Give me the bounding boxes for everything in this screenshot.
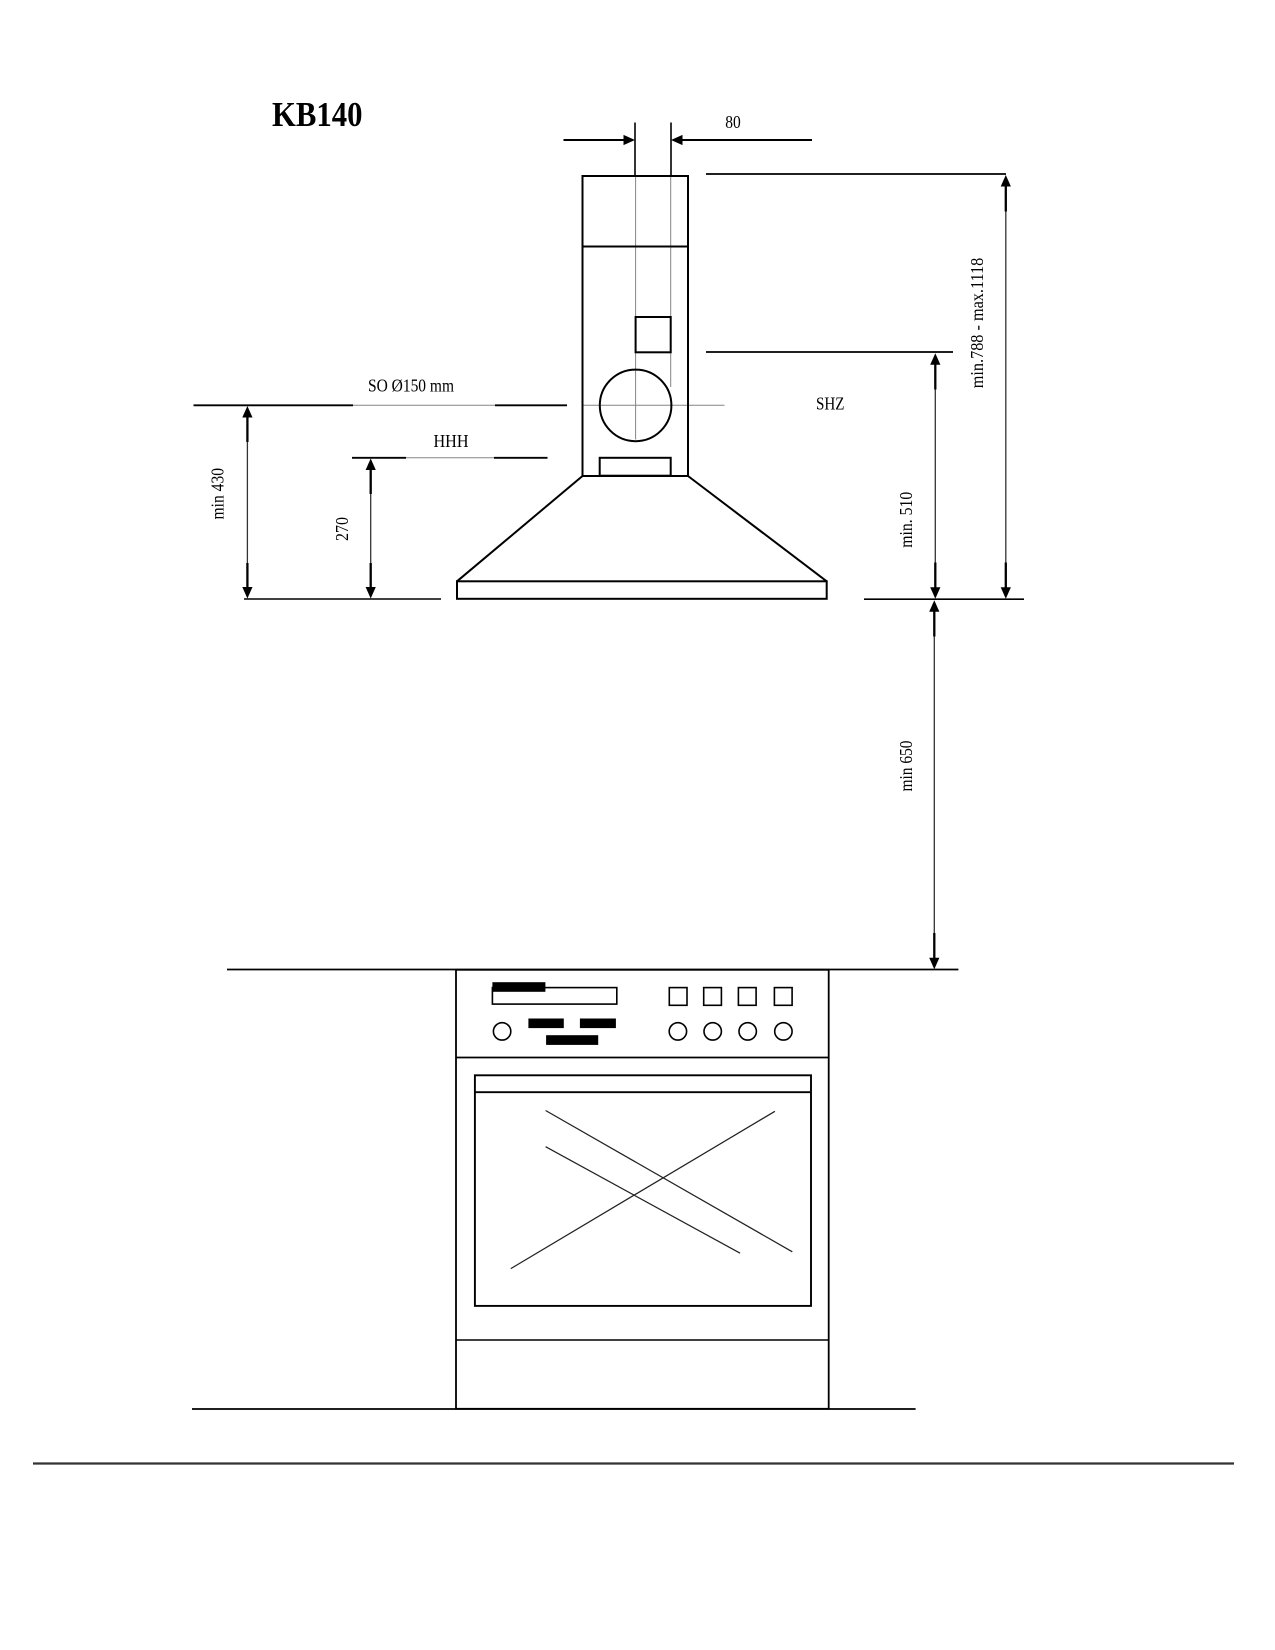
svg-text:SO Ø150 mm: SO Ø150 mm bbox=[368, 376, 454, 396]
svg-text:80: 80 bbox=[725, 112, 741, 132]
svg-text:270: 270 bbox=[332, 517, 352, 541]
svg-text:min 430: min 430 bbox=[208, 468, 228, 520]
svg-text:HHH: HHH bbox=[434, 431, 469, 451]
svg-text:KB140: KB140 bbox=[272, 95, 363, 134]
svg-text:SHZ: SHZ bbox=[816, 394, 845, 414]
svg-text:min.788 - max.1118: min.788 - max.1118 bbox=[967, 258, 987, 389]
svg-text:min. 510: min. 510 bbox=[896, 492, 916, 548]
svg-text:min 650: min 650 bbox=[896, 741, 916, 792]
